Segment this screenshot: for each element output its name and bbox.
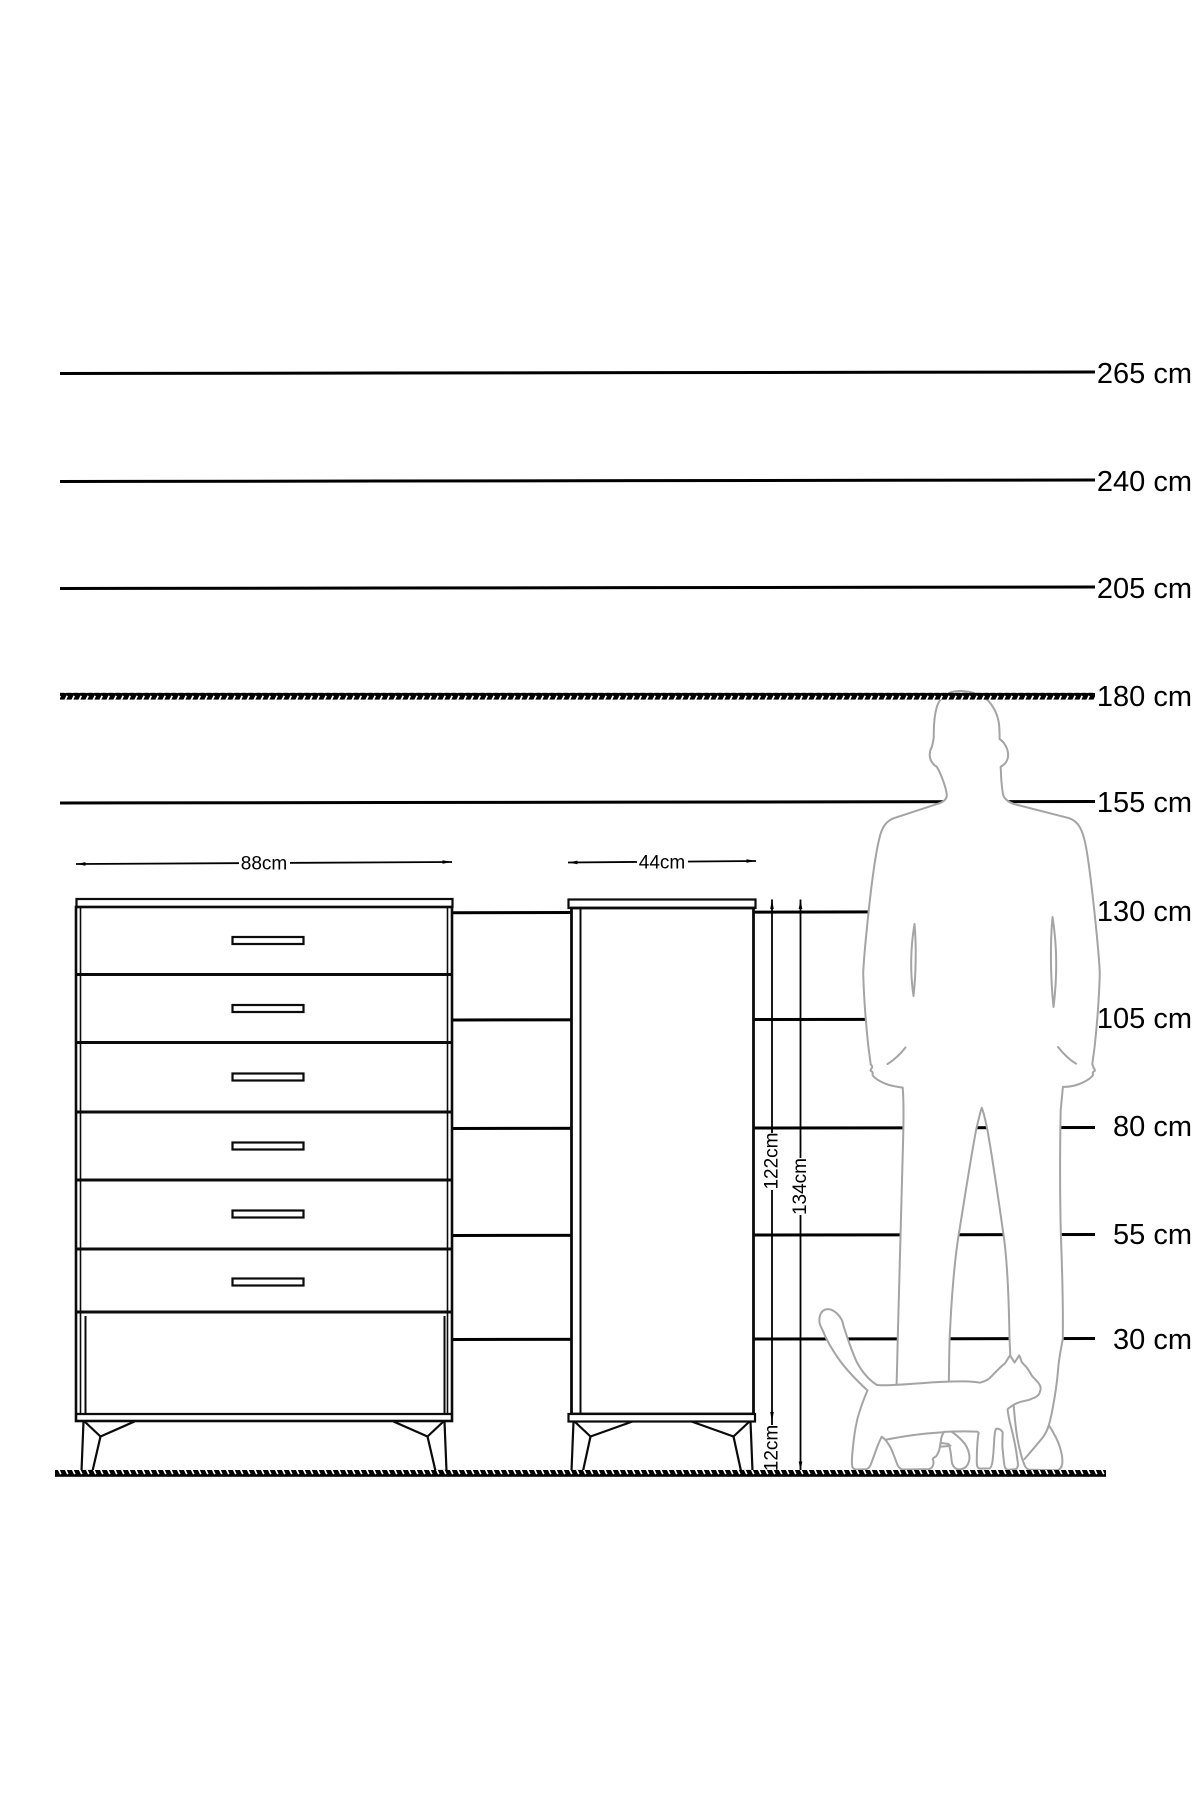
svg-text:12cm: 12cm [762,1425,783,1471]
svg-text:240 cm: 240 cm [1097,466,1192,498]
svg-text:265 cm: 265 cm [1097,358,1192,390]
svg-text:105 cm: 105 cm [1097,1003,1192,1035]
svg-text:134cm: 134cm [790,1158,811,1215]
svg-text:180 cm: 180 cm [1097,681,1192,713]
svg-text:80 cm: 80 cm [1113,1111,1192,1143]
svg-text:155 cm: 155 cm [1097,787,1192,819]
svg-text:55 cm: 55 cm [1113,1219,1192,1251]
svg-text:88cm: 88cm [241,854,287,875]
svg-text:205 cm: 205 cm [1097,573,1192,605]
svg-text:30 cm: 30 cm [1113,1324,1192,1356]
svg-text:122cm: 122cm [762,1132,783,1189]
svg-text:44cm: 44cm [639,853,685,874]
svg-text:130 cm: 130 cm [1097,896,1192,928]
